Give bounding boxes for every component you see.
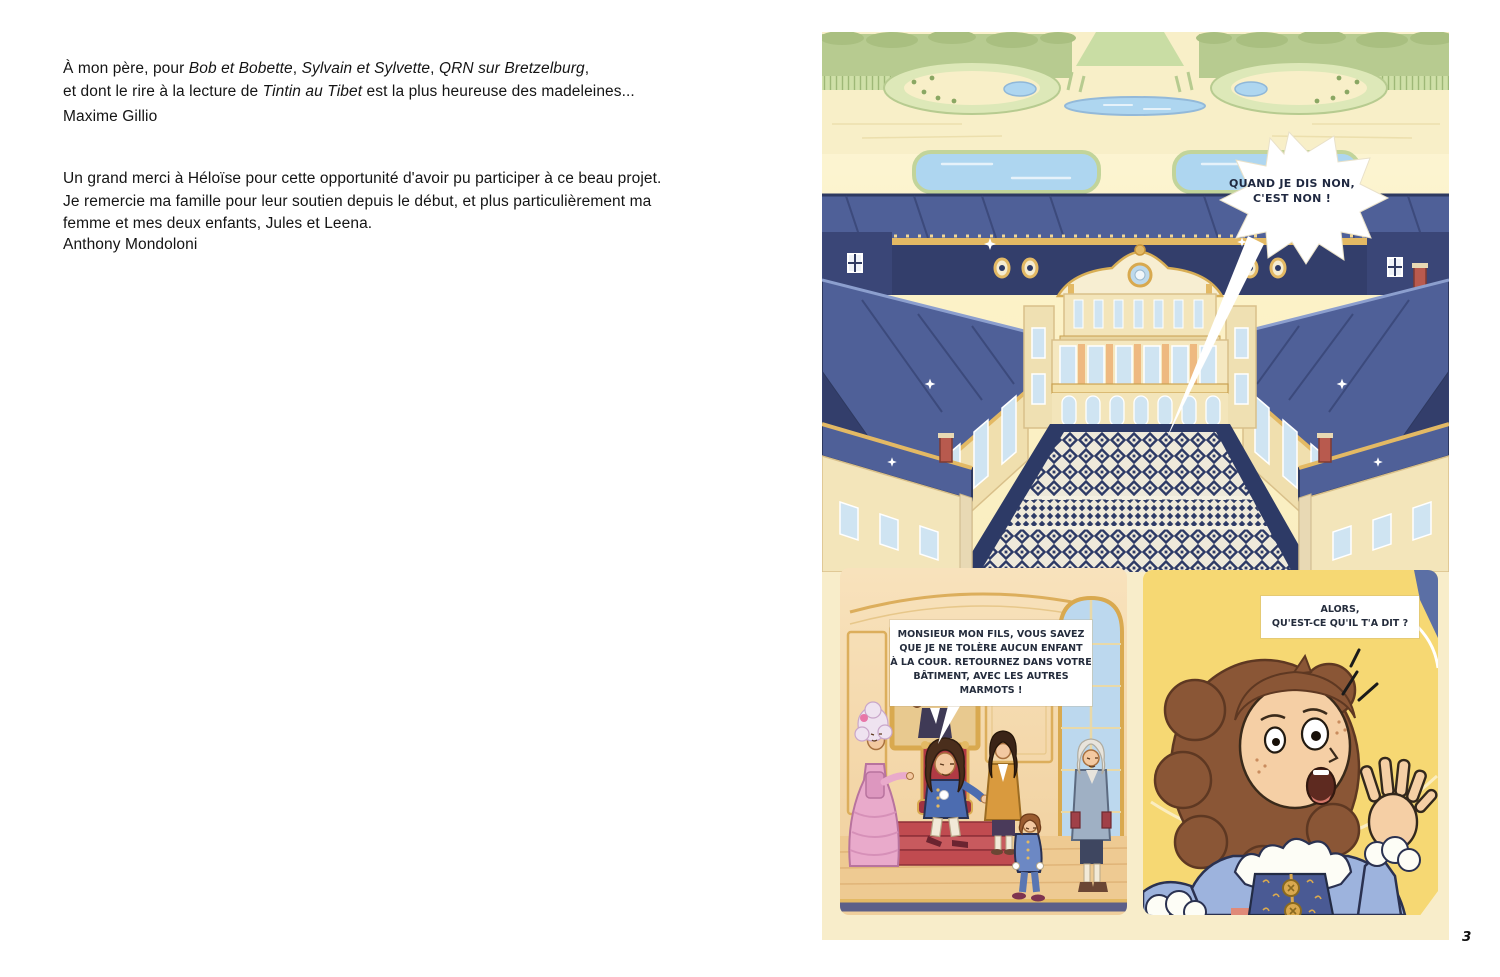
balcony — [1052, 384, 1228, 393]
stone-quoins — [960, 494, 972, 572]
dedication-line: et dont le rire à la lecture de Tintin a… — [63, 81, 635, 104]
dedication-author-1: Maxime Gillio — [63, 106, 157, 129]
front-pavilion-right — [1299, 424, 1449, 572]
front-pavilion-left — [822, 424, 972, 572]
dedication-line: femme et mes deux enfants, Jules et Leen… — [63, 213, 661, 236]
hair-flower — [860, 714, 868, 722]
gardens — [822, 32, 1449, 154]
bosquet-left — [884, 62, 1060, 114]
versailles-illustration — [822, 32, 1449, 572]
king-speech-text: MONSIEUR MON FILS, VOUS SAVEZ QUE JE NE … — [890, 628, 1091, 698]
brick-chimney — [1319, 436, 1331, 462]
dedication-block-2: Un grand merci à Héloïse pour cette oppo… — [63, 168, 661, 236]
shout-bubble-text: QUAND JE DIS NON, C'EST NON ! — [1225, 176, 1359, 206]
bosquet-right — [1211, 62, 1387, 114]
page-number: 3 — [1462, 929, 1471, 945]
stone-quoins — [1299, 494, 1311, 572]
floor-edge-band — [840, 903, 1127, 912]
dedication-line: Un grand merci à Héloïse pour cette oppo… — [63, 168, 661, 191]
brick-chimney — [940, 436, 952, 462]
dedication-block-1: À mon père, pour Bob et Bobette, Sylvain… — [63, 58, 635, 103]
gold-finial — [1135, 245, 1145, 255]
side-pavilion-right — [1226, 306, 1256, 428]
dedication-line: Je remercie ma famille pour leur soutien… — [63, 191, 661, 214]
gold-ridge-crest — [822, 238, 1449, 245]
girl-mouth — [1307, 768, 1335, 804]
comic-page: QUAND JE DIS NON, C'EST NON ! — [822, 32, 1449, 940]
book-spread: { "page_number": "3", "dedication": { "b… — [0, 0, 1500, 977]
surprised-child-panel: ALORS, QU'EST-CE QU'IL T'A DIT ? — [1143, 570, 1438, 915]
side-pavilion-left — [1024, 306, 1054, 428]
versailles-aerial-panel: QUAND JE DIS NON, C'EST NON ! — [822, 32, 1449, 572]
friend-speech-bubble: ALORS, QU'EST-CE QU'IL T'A DIT ? — [1261, 596, 1419, 638]
king-speech-bubble: MONSIEUR MON FILS, VOUS SAVEZ QUE JE NE … — [890, 620, 1092, 706]
pond-right — [1235, 82, 1267, 96]
pond-left — [1004, 82, 1036, 96]
parterre-pool-left — [914, 152, 1099, 192]
dedication-line: À mon père, pour Bob et Bobette, Sylvain… — [63, 58, 635, 81]
latona-basin — [1065, 97, 1205, 115]
waist-sash — [1231, 908, 1251, 915]
throne-room-panel: MONSIEUR MON FILS, VOUS SAVEZ QUE JE NE … — [840, 568, 1127, 915]
friend-speech-text: ALORS, QU'EST-CE QU'IL T'A DIT ? — [1272, 603, 1408, 631]
gold-skirting — [840, 899, 1127, 903]
dedication-author-2: Anthony Mondoloni — [63, 234, 197, 257]
